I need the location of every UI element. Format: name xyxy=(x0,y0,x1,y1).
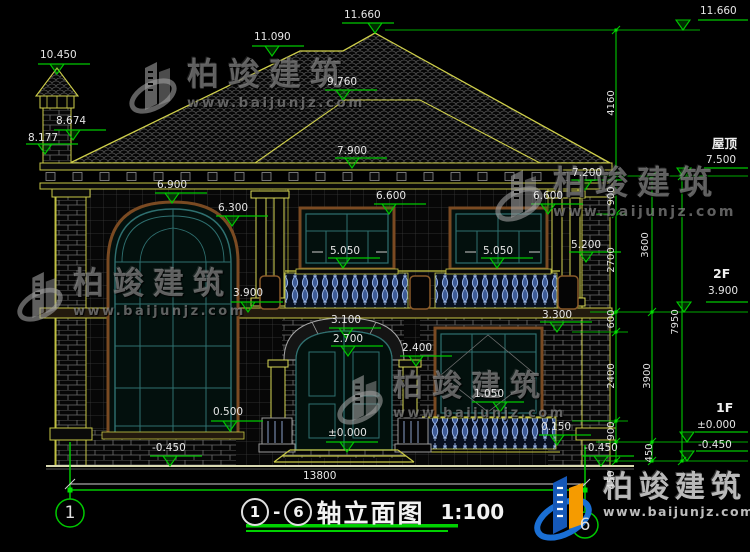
level-label: 7.900 xyxy=(337,146,367,157)
level-label: 2.700 xyxy=(333,334,363,345)
level-label: 6.600 xyxy=(376,191,406,202)
title-name: 轴立面图 xyxy=(316,494,424,530)
label-2f: 2F xyxy=(713,266,730,281)
f1-window xyxy=(435,328,542,419)
level-label: 6.600 xyxy=(533,191,563,202)
chain-dim-label: 7950 xyxy=(671,309,681,334)
company-logo-brand: 柏竣建筑 xyxy=(603,471,750,504)
level-label: 1.050 xyxy=(474,389,504,400)
level-label: 8.177 xyxy=(28,133,58,144)
level-label: 2.400 xyxy=(402,343,432,354)
level-label: 5.050 xyxy=(330,246,360,257)
level-label: 11.660 xyxy=(700,6,737,17)
level-label: 3.900 xyxy=(233,288,263,299)
chain-dim-label: 900 xyxy=(607,421,617,440)
level-label: 6.900 xyxy=(157,180,187,191)
chain-dim-label: 2400 xyxy=(607,363,617,388)
title-axis-end: 6 xyxy=(284,498,312,526)
title-axis-start: 1 xyxy=(241,498,269,526)
drawing-title: 1 - 6 轴立面图 1:100 xyxy=(241,494,504,530)
level-label: 11.090 xyxy=(254,32,291,43)
title-separator: - xyxy=(273,502,280,523)
level-label: 3.900 xyxy=(708,286,738,297)
axis-bubble-left: 1 xyxy=(65,503,76,523)
level-label: ±0.000 xyxy=(697,420,736,431)
chain-dim-label: 600 xyxy=(607,309,617,328)
level-label: -0.450 xyxy=(584,443,618,454)
f2-window-center xyxy=(296,208,398,274)
level-label: ±0.000 xyxy=(328,428,367,439)
level-label: 5.200 xyxy=(571,240,601,251)
ground-line xyxy=(46,466,634,469)
level-label: 11.660 xyxy=(344,10,381,21)
arched-window xyxy=(102,202,244,439)
chain-dim-label: 3600 xyxy=(641,232,651,257)
chain-dim-label: 900 xyxy=(607,186,617,205)
company-logo-url: www.baijunjz.com xyxy=(603,504,750,519)
overall-width-dim: 13800 xyxy=(303,471,336,482)
title-scale: 1:100 xyxy=(441,500,505,524)
roof xyxy=(70,33,610,163)
level-label: 7.200 xyxy=(572,168,602,179)
level-label: -0.450 xyxy=(152,443,186,454)
level-label: 5.050 xyxy=(483,246,513,257)
cornice xyxy=(40,163,612,189)
level-label: 0.500 xyxy=(213,407,243,418)
level-label: -0.450 xyxy=(698,440,732,451)
label-1f: 1F xyxy=(716,400,733,415)
company-logo-icon xyxy=(533,471,597,547)
cad-canvas: 柏竣建筑 www.baijunjz.com 柏竣建筑 www.baijunjz.… xyxy=(0,0,750,552)
level-label: 3.100 xyxy=(331,315,361,326)
level-label: 7.500 xyxy=(706,155,736,166)
axis-bubble-right: 6 xyxy=(580,515,591,535)
level-label: 6.300 xyxy=(218,203,248,214)
level-label: 10.450 xyxy=(40,50,77,61)
company-logo: 柏竣建筑 www.baijunjz.com xyxy=(533,471,750,547)
level-label: 3.300 xyxy=(542,310,572,321)
level-label: 9.760 xyxy=(327,77,357,88)
chain-dim-label: 450 xyxy=(645,443,655,462)
level-label: 8.674 xyxy=(56,116,86,127)
label-roof: 屋顶 xyxy=(712,133,737,152)
chain-dim-label: 2700 xyxy=(607,247,617,272)
chain-dim-label: 450 xyxy=(607,470,617,489)
chain-dim-label: 3900 xyxy=(643,363,653,388)
level-label: 0.150 xyxy=(541,422,571,433)
chain-dim-label: 4160 xyxy=(607,90,617,115)
